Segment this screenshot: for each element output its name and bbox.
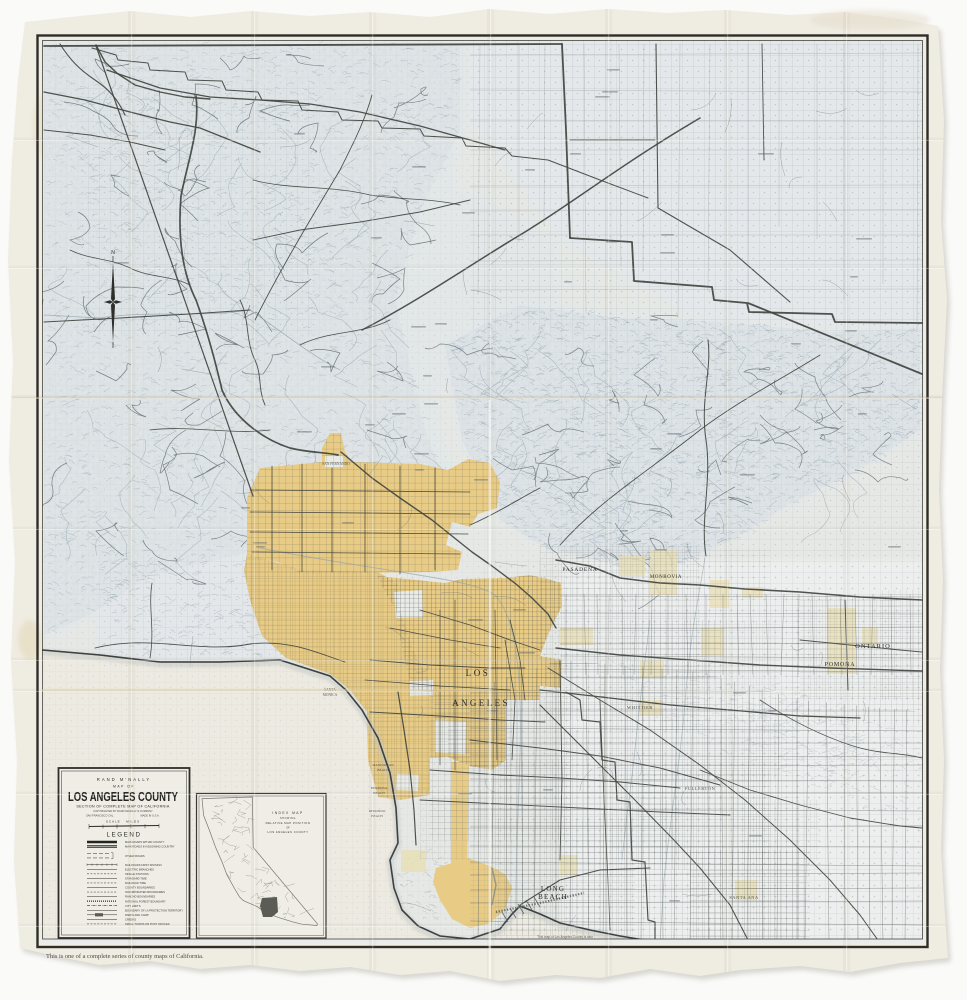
svg-text:MADE IN U.S.A.: MADE IN U.S.A. <box>140 814 159 818</box>
svg-text:FULLERTON: FULLERTON <box>685 786 716 791</box>
svg-text:BEACH: BEACH <box>377 768 389 772</box>
svg-text:SHOWING: SHOWING <box>280 817 296 820</box>
svg-text:LOS: LOS <box>466 668 491 678</box>
svg-text:MONICA: MONICA <box>323 693 338 697</box>
svg-text:RAND M‘NALLY: RAND M‘NALLY <box>97 777 151 782</box>
svg-text:RELATIVE MAP POSITION: RELATIVE MAP POSITION <box>266 821 311 825</box>
svg-text:N: N <box>111 250 115 256</box>
svg-text:ONTARIO: ONTARIO <box>855 643 891 650</box>
svg-text:SAN FRANCISCO CAL.: SAN FRANCISCO CAL. <box>86 814 114 818</box>
svg-text:SECTION OF COMPLETE MAP OF CAL: SECTION OF COMPLETE MAP OF CALIFORNIA <box>76 805 169 809</box>
svg-text:This is one of a complete seri: This is one of a complete series of coun… <box>46 953 204 960</box>
svg-text:COPYRIGHTED BY RAND McNALLY &: COPYRIGHTED BY RAND McNALLY & COMPANY <box>93 809 153 813</box>
svg-text:ANGELES: ANGELES <box>452 698 510 708</box>
svg-text:WHITTIER: WHITTIER <box>627 705 653 710</box>
svg-text:PASADENA: PASADENA <box>562 567 597 573</box>
svg-text:INDEX MAP: INDEX MAP <box>272 811 303 815</box>
svg-text:SANTA ANA: SANTA ANA <box>729 895 759 900</box>
svg-text:LONG: LONG <box>541 885 565 893</box>
svg-text:LEGEND: LEGEND <box>106 832 141 839</box>
svg-text:POMONA: POMONA <box>825 662 856 668</box>
svg-text:BEACH: BEACH <box>538 893 568 901</box>
svg-text:LOS ANGELES COUNTY: LOS ANGELES COUNTY <box>267 830 308 834</box>
svg-text:SAN FERNANDO: SAN FERNANDO <box>322 462 350 466</box>
svg-text:MONROVIA: MONROVIA <box>650 575 682 580</box>
